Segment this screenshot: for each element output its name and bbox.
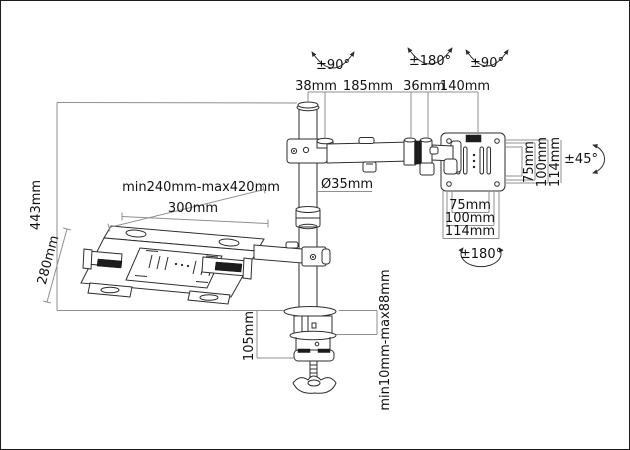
label-vesa-rotation: ±180° (460, 247, 502, 262)
label-vesa-tilt: ±45° (564, 152, 598, 167)
desk-clamp (284, 307, 336, 394)
laptop-tray (81, 226, 264, 304)
label-pole-height: 443mm (29, 180, 44, 230)
vesa-top-connector (466, 135, 481, 142)
label-clamp-range: min10mm-max88mm (378, 269, 393, 410)
pole-collar (296, 207, 320, 229)
label-rotation-pole-top: ±90° (316, 58, 350, 73)
label-vesa-vertical-114: 114mm (548, 137, 563, 187)
label-clamp-height: 105mm (242, 311, 257, 361)
clamp-wing-nut (293, 376, 336, 393)
label-rotation-vesa-top: ±90° (470, 56, 504, 71)
dimension-diagram: ±90° ±180° ±90° 38mm 185mm 36mm 140mm 44… (0, 0, 630, 450)
pole (297, 102, 319, 309)
label-arm-segment-2: 185mm (343, 79, 393, 94)
label-arm-segment-1: 38mm (295, 79, 337, 94)
tray-arm (254, 242, 330, 266)
label-rotation-elbow-top: ±180° (409, 54, 451, 69)
label-tray-range: min240mm-max420mm (122, 180, 280, 195)
label-pole-diameter: Ø35mm (321, 177, 373, 192)
arm-mount-bracket (287, 138, 333, 163)
arm-segment-1 (327, 138, 411, 173)
monitor-arm-artwork (81, 102, 505, 393)
label-arm-segment-3: 36mm (403, 79, 445, 94)
label-tray-width: 300mm (168, 201, 218, 216)
elbow-joint (404, 138, 434, 175)
diagram-canvas: ±90° ±180° ±90° 38mm 185mm 36mm 140mm 44… (0, 0, 630, 450)
label-vesa-horizontal-114: 114mm (445, 224, 495, 239)
arm-segment-2 (430, 141, 461, 174)
label-arm-segment-4: 140mm (440, 79, 490, 94)
